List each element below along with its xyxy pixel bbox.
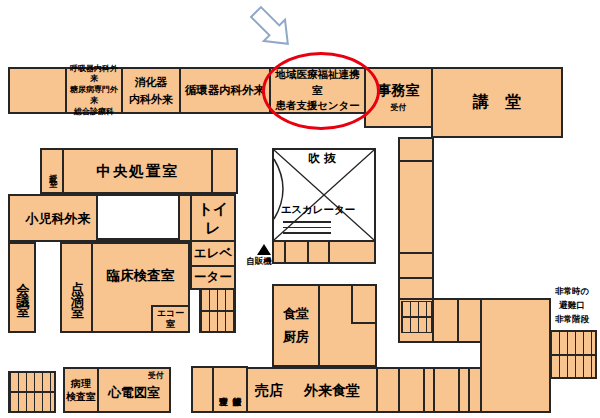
room-corridor-cell-1	[376, 367, 400, 413]
room-digestive-clinic: 消化器 内科外来	[121, 67, 181, 114]
room-right-col-1	[398, 137, 434, 162]
echo-line2: 室	[157, 319, 184, 330]
room-dining-hall-block	[480, 298, 551, 413]
room-digestive-label: 消化器 内科外来	[129, 74, 173, 107]
iv-room-label: 点滴室	[68, 270, 85, 306]
room-unlabeled-bottom	[191, 366, 214, 413]
central-treatment-label: 中央処置室	[96, 162, 179, 181]
room-shop-and-dining: 売店 外来食堂	[246, 367, 378, 413]
pathology-line1: 病理	[66, 377, 96, 391]
vending-machine-icon	[257, 244, 271, 255]
atrium-label: 吹抜	[300, 150, 348, 167]
room-right-col-3	[398, 252, 434, 279]
echo-label: エコー 室	[157, 308, 184, 330]
admin-office-reception-label: 受付	[391, 103, 407, 113]
room-respiratory-clinic: 呼吸器内科外来 糖尿病専門外来 総合診療科	[65, 67, 123, 114]
room-right-strip-b	[432, 298, 459, 343]
room-toilet: トイレ	[190, 194, 236, 242]
room-right-strip-c	[457, 298, 482, 343]
kitchen-label: 食堂 厨房	[283, 303, 309, 347]
room-iv-drip: 点滴室	[60, 242, 93, 333]
room-respiratory-label: 呼吸器内科外来 糖尿病専門外来 総合診療科	[67, 64, 121, 118]
room-corridor-cell-2	[398, 367, 425, 413]
outpatient-dining-label: 外来食堂	[304, 381, 360, 399]
clinical-lab-label: 臨床検査室	[107, 267, 175, 285]
digestive-line2: 内科外来	[129, 91, 173, 108]
staircase-right-column	[401, 301, 432, 333]
elevator-line2: ーター	[194, 269, 232, 285]
pediatrics-courtyard-cutout	[96, 194, 180, 240]
room-right-strip-a	[398, 298, 434, 343]
room-medical-records: 診療情報 管理室	[212, 366, 248, 413]
elevator-line1: エレベ	[194, 245, 232, 261]
room-cell-row-4	[328, 240, 376, 264]
room-auditorium: 講 堂	[431, 67, 563, 138]
echo-line1: エコー	[157, 308, 184, 319]
pediatrics-label: 小児科外来	[14, 211, 102, 228]
pathology-label: 病理 検査室	[66, 377, 96, 404]
room-cell-row-3	[307, 240, 330, 264]
hospital-floor-plan: 呼吸器内科外来 糖尿病専門外来 総合診療科 消化器 内科外来 循環器内科外来 地…	[0, 0, 600, 418]
digestive-line1: 消化器	[129, 74, 173, 91]
room-meeting: 会議室	[8, 242, 36, 333]
emergency-line2: 避難口	[542, 298, 600, 312]
kitchen-line1: 食堂	[283, 303, 309, 325]
room-elevator-upper: エレベ	[190, 240, 236, 267]
room-nursing: 授乳室	[40, 148, 64, 194]
room-unlabeled-mid	[211, 148, 238, 194]
emergency-line3: 非常階段	[542, 312, 600, 326]
kitchen-line2: 厨房	[283, 326, 309, 348]
room-pathology-lab: 病理 検査室	[63, 367, 99, 413]
room-kitchen-notch	[351, 284, 377, 324]
escalator-label: エスカレーター	[278, 203, 358, 217]
admin-office-label: 事務室	[378, 81, 420, 99]
room-central-treatment: 中央処置室	[62, 148, 213, 194]
room-ecg: 受付 心電図室	[97, 367, 171, 413]
room-right-col-4	[398, 277, 434, 300]
meeting-room-label: 会議室	[14, 273, 31, 303]
room-cardiology-clinic: 循環器内科外来	[179, 67, 271, 114]
room-kitchen: 食堂 厨房	[272, 284, 320, 367]
respiratory-line2: 糖尿病専門外来	[67, 85, 121, 107]
room-elevator-lower: ーター	[190, 265, 236, 290]
room-echo: エコー 室	[151, 305, 190, 333]
shop-label: 売店	[255, 381, 283, 399]
staircase-emergency	[549, 330, 597, 379]
room-corridor-cell-4	[433, 367, 460, 413]
respiratory-line1: 呼吸器内科外来	[67, 64, 121, 86]
cardiology-label: 循環器内科外来	[185, 83, 266, 98]
ecg-label: 心電図室	[108, 385, 160, 402]
escalator-steps-icon	[283, 221, 331, 238]
emergency-exit-label: 非常時の 避難口 非常階段	[542, 284, 600, 326]
staircase-mid-left	[199, 288, 236, 333]
staircase-bottom-left	[8, 371, 56, 413]
pointer-arrow-icon	[238, 0, 310, 64]
ecg-reception-label: 受付	[148, 371, 164, 381]
toilet-label: トイレ	[192, 199, 234, 238]
room-right-col-2	[398, 160, 434, 254]
vending-machine-label: 自販機	[236, 256, 282, 268]
nursing-label: 授乳室	[47, 168, 57, 174]
auditorium-label: 講 堂	[473, 92, 521, 113]
room-cell-row-2	[284, 240, 309, 264]
room-unlabeled-top-left	[8, 67, 67, 114]
emergency-line1: 非常時の	[542, 284, 600, 298]
pathology-line2: 検査室	[66, 390, 96, 404]
respiratory-line3: 総合診療科	[67, 107, 121, 118]
